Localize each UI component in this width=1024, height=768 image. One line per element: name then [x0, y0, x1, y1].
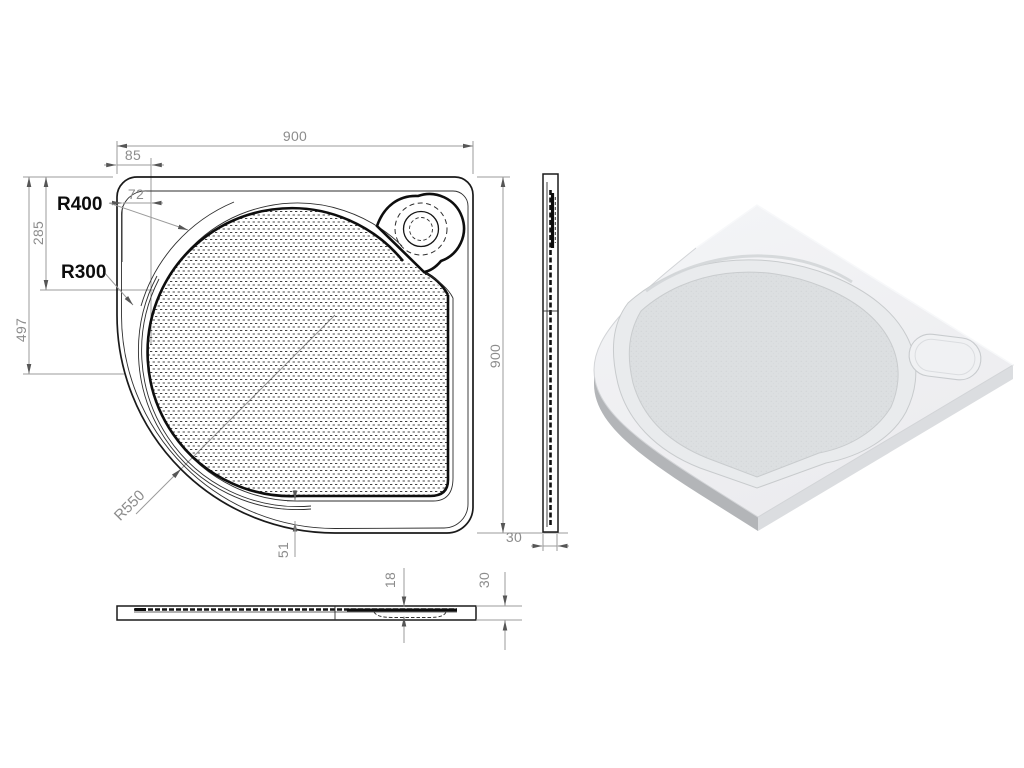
- dim-18-value: 18: [382, 572, 398, 588]
- label-r300: R300: [61, 262, 106, 283]
- dim-285-value: 285: [30, 221, 46, 245]
- label-r550: R550: [111, 487, 148, 524]
- render-3d: [594, 205, 1013, 531]
- front-drain-recess-dashed: [374, 612, 446, 618]
- dim-height-value: 900: [487, 344, 503, 368]
- drain-circle-dashed-outer: [395, 203, 447, 255]
- drain-circle-solid: [404, 212, 439, 247]
- side-view: 30: [506, 174, 569, 551]
- drain-circle-dashed-inner: [410, 218, 433, 241]
- plan-view: 900 85 72 285 497 900 51 R400 R300 R550: [13, 128, 568, 558]
- r400-leader: [109, 203, 188, 230]
- dim-side-30-value: 30: [506, 529, 522, 545]
- label-r400: R400: [57, 194, 102, 215]
- shower-tray-drawing: 900 85 72 285 497 900 51 R400 R300 R550 …: [0, 0, 1024, 768]
- r300-leader: [103, 271, 133, 305]
- front-view: 18 30: [117, 568, 522, 650]
- technical-drawing-page: 900 85 72 285 497 900 51 R400 R300 R550 …: [0, 0, 1024, 768]
- dim-72-value: 72: [128, 186, 144, 202]
- dim-497-value: 497: [13, 318, 29, 342]
- dim-front-30-value: 30: [476, 572, 492, 588]
- dim-width-value: 900: [283, 128, 307, 144]
- dim-85-value: 85: [125, 147, 141, 163]
- dim-51-value: 51: [275, 542, 291, 558]
